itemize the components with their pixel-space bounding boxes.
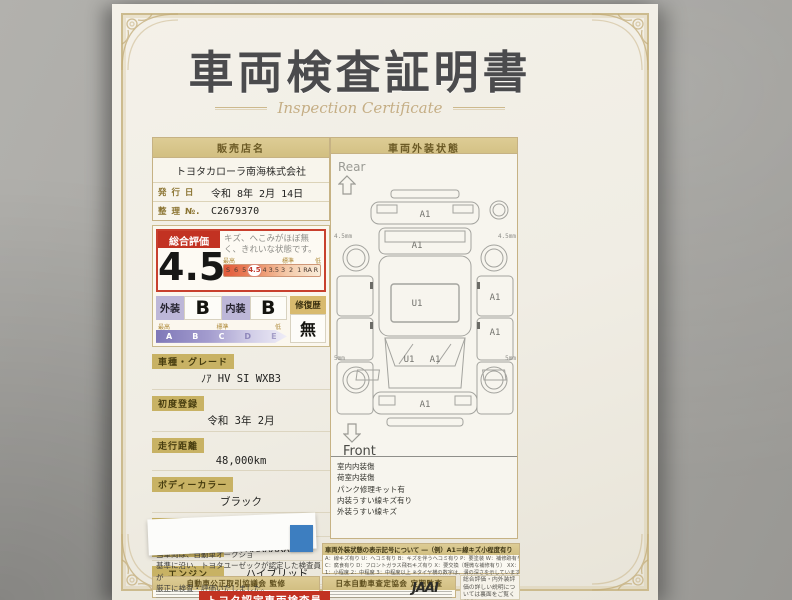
field-first-registration: 初度登録 令和 3年 2月 bbox=[152, 392, 330, 432]
scale-value: RA bbox=[303, 265, 312, 276]
field-value: 令和 3年 2月 bbox=[152, 411, 330, 432]
note-line: 内装うすい線キズ有り bbox=[337, 495, 412, 506]
damage-mark: U1 bbox=[404, 355, 415, 365]
repair-history-value: 無 bbox=[290, 314, 326, 343]
grade-letter: C bbox=[208, 330, 234, 343]
disclaimer-line: 基準に沿い、トヨタユーゼックが認定した検査員が bbox=[156, 560, 328, 583]
down-arrow-icon bbox=[343, 423, 361, 443]
blue-sticker bbox=[290, 525, 313, 552]
damage-mark: A1 bbox=[430, 355, 441, 365]
seller-header: 販売店名 bbox=[153, 138, 329, 158]
grade-low-label: 低 bbox=[275, 322, 281, 329]
interior-grade: B bbox=[250, 296, 288, 320]
ref-number-row: 整 理 №. C2679370 bbox=[153, 202, 329, 220]
rear-spoiler bbox=[391, 190, 459, 198]
rating-score: 4.5 bbox=[158, 248, 220, 288]
jaai-logo: JAAI bbox=[412, 581, 438, 596]
scale-value: 6 bbox=[232, 265, 240, 276]
see-reverse-info-box: 総合評価・内外装評価の詳しい説明については裏面をご覧ください。 bbox=[460, 575, 520, 600]
legend-line: A：線キズ有り U：ヘコミ有り B：キズを伴うヘコミ有り P：要塗装 W：補修跡… bbox=[325, 556, 517, 563]
grade-letter: D bbox=[235, 330, 261, 343]
certificate-title: 車両検査証明書 bbox=[160, 36, 560, 101]
grade-mid-label: 標準 bbox=[216, 322, 228, 329]
car-development-diagram: A1 A1 U1 A1 A1 U1 A1 A1 4.5mm 4.5mm 5mm … bbox=[333, 188, 517, 450]
tire-depth: 4.5mm bbox=[334, 233, 352, 240]
field-value: ブラック bbox=[152, 492, 330, 513]
note-line: 荷室内装傷 bbox=[337, 472, 412, 483]
seller-box: 販売店名 トヨタカローラ南海株式会社 発 行 日 令和 8年 2月 14日 整 … bbox=[152, 137, 330, 221]
damage-mark: U1 bbox=[412, 299, 423, 309]
ref-number-value: C2679370 bbox=[211, 206, 329, 217]
symbol-legend-box: 車両外装状態の表示記号について ―（例）A1＝線キズ小程度有り A：線キズ有り … bbox=[322, 543, 520, 574]
rating-scale-bar: S 6 5 4.5 4 3.5 3 2 1 RA R bbox=[223, 264, 321, 277]
tire-depth: 5mm bbox=[334, 355, 345, 362]
issue-date-label: 発 行 日 bbox=[153, 183, 211, 201]
grade-row: 外装 B 内装 B bbox=[156, 296, 287, 320]
front-lip bbox=[387, 418, 463, 426]
field-label: 初度登録 bbox=[152, 396, 204, 411]
tire-depth: 4.5mm bbox=[498, 233, 516, 240]
panel-divider bbox=[331, 456, 517, 457]
rating-comment: キズ、へこみがほぼ無く、きれいな状態です。 bbox=[220, 231, 324, 248]
scale-high-label: 最高 bbox=[223, 256, 235, 264]
left-rear-panel bbox=[337, 276, 373, 316]
field-value: 48,000km bbox=[152, 453, 330, 471]
repair-history-label: 修復歴 bbox=[290, 296, 326, 314]
scale-value-selected: 4.5 bbox=[248, 265, 260, 276]
scale-low-label: 低 bbox=[315, 256, 321, 264]
legend-header: 車両外装状態の表示記号について ―（例）A1＝線キズ小程度有り bbox=[323, 544, 519, 555]
grade-scale-arrow: A B C D E bbox=[156, 330, 287, 343]
ref-number-label: 整 理 №. bbox=[153, 202, 211, 220]
damage-mark: A1 bbox=[420, 210, 431, 220]
scale-value: S bbox=[224, 265, 232, 276]
photo-background: { "title": { "main": "車両検査証明書", "sub": "… bbox=[0, 0, 792, 600]
exterior-label: 外装 bbox=[156, 296, 184, 320]
grade-left: 外装 B 内装 B 最高 標準 低 A B C D bbox=[156, 296, 287, 343]
certificate-subtitle: Inspection Certificate bbox=[160, 99, 560, 117]
issue-date-value: 令和 8年 2月 14日 bbox=[211, 185, 329, 200]
field-label: 走行距離 bbox=[152, 438, 204, 453]
right-door-panel bbox=[477, 318, 513, 360]
repair-history: 修復歴 無 bbox=[290, 296, 326, 343]
corner-flourish-icon bbox=[588, 10, 652, 74]
rating-scale: 最高 標準 低 S 6 5 4.5 4 3.5 3 2 1 RA bbox=[220, 248, 324, 288]
inspector-badge-text: トヨタ認定車両検査員 bbox=[199, 591, 330, 600]
roof bbox=[379, 256, 471, 336]
seller-name: トヨタカローラ南海株式会社 bbox=[153, 158, 329, 183]
legend-line: C：腐食有り D：フロントガラス飛石キズ有り X：要交換（軽微な補修有り） XX… bbox=[325, 563, 517, 570]
grade-letter: B bbox=[182, 330, 208, 343]
damage-mark: A1 bbox=[412, 241, 423, 251]
grade-section: 外装 B 内装 B 最高 標準 低 A B C D bbox=[156, 296, 326, 343]
hood bbox=[385, 338, 465, 388]
note-line: 外装うすい線キズ bbox=[337, 506, 412, 517]
field-value: ﾉｱ HV SI WXB3 bbox=[152, 369, 330, 390]
scale-mid-label: 標準 bbox=[235, 256, 315, 264]
certificate-paper: 車両検査証明書 Inspection Certificate 販売店名 トヨタカ… bbox=[112, 4, 658, 600]
legend-title: 車両外装状態の表示記号について bbox=[325, 547, 419, 554]
corner-flourish-icon bbox=[588, 530, 652, 594]
flourish-line bbox=[215, 107, 267, 110]
evaluation-box: 総合評価 キズ、へこみがほぼ無く、きれいな状態です。 4.5 最高 標準 低 S… bbox=[152, 225, 330, 347]
grade-letter: A bbox=[156, 330, 182, 343]
scale-value: R bbox=[312, 265, 320, 276]
scale-value: 2 bbox=[287, 265, 295, 276]
issue-date-row: 発 行 日 令和 8年 2月 14日 bbox=[153, 183, 329, 202]
rating-scale-labels: 最高 標準 低 bbox=[223, 256, 321, 264]
scale-value: 3.5 bbox=[269, 265, 279, 276]
damage-mark: A1 bbox=[420, 400, 431, 410]
disclaimer-text: 当車両は、自動車オークショ 基準に沿い、トヨタユーゼックが認定した検査員が 厳正… bbox=[156, 549, 328, 594]
front-indicator: Front bbox=[343, 422, 376, 459]
tire-depth: 5mm bbox=[505, 355, 516, 362]
damage-mark: A1 bbox=[490, 293, 501, 303]
legend-example: ―（例）A1＝線キズ小程度有り bbox=[421, 547, 512, 554]
scale-value: 1 bbox=[295, 265, 303, 276]
condition-notes: 室内内装傷 荷室内装傷 パンク修理キット有 内装うすい線キズ有り 外装うすい線キ… bbox=[337, 461, 412, 517]
field-body-color: ボディーカラー ブラック bbox=[152, 473, 330, 513]
field-model-grade: 車種・グレード ﾉｱ HV SI WXB3 bbox=[152, 350, 330, 390]
roof-center-panel bbox=[391, 284, 459, 322]
inspector-badge: トヨタ認定車両検査員 bbox=[152, 591, 330, 600]
windshield bbox=[385, 338, 465, 366]
overall-rating-box: 総合評価 キズ、へこみがほぼ無く、きれいな状態です。 4.5 最高 標準 低 S… bbox=[156, 229, 326, 292]
grade-letter: E bbox=[261, 330, 287, 343]
note-line: 室内内装傷 bbox=[337, 461, 412, 472]
subtitle-text: Inspection Certificate bbox=[277, 99, 442, 117]
damage-mark: A1 bbox=[490, 328, 501, 338]
rear-label: Rear bbox=[338, 160, 365, 174]
exterior-diagram-panel: Rear bbox=[330, 153, 518, 539]
grade-high-label: 最高 bbox=[158, 322, 170, 329]
scale-value: 4 bbox=[261, 265, 269, 276]
exterior-grade: B bbox=[184, 296, 222, 320]
scale-value: 3 bbox=[279, 265, 287, 276]
field-label: ボディーカラー bbox=[152, 477, 233, 492]
scale-value: 5 bbox=[240, 265, 248, 276]
flourish-line bbox=[453, 107, 505, 110]
note-line: パンク修理キット有 bbox=[337, 484, 412, 495]
field-label: 車種・グレード bbox=[152, 354, 234, 369]
back-door bbox=[379, 228, 471, 254]
grade-scale-labels: 最高 標準 低 bbox=[156, 320, 287, 329]
interior-label: 内装 bbox=[222, 296, 250, 320]
field-mileage: 走行距離 48,000km bbox=[152, 434, 330, 471]
left-door-panel bbox=[337, 318, 373, 360]
